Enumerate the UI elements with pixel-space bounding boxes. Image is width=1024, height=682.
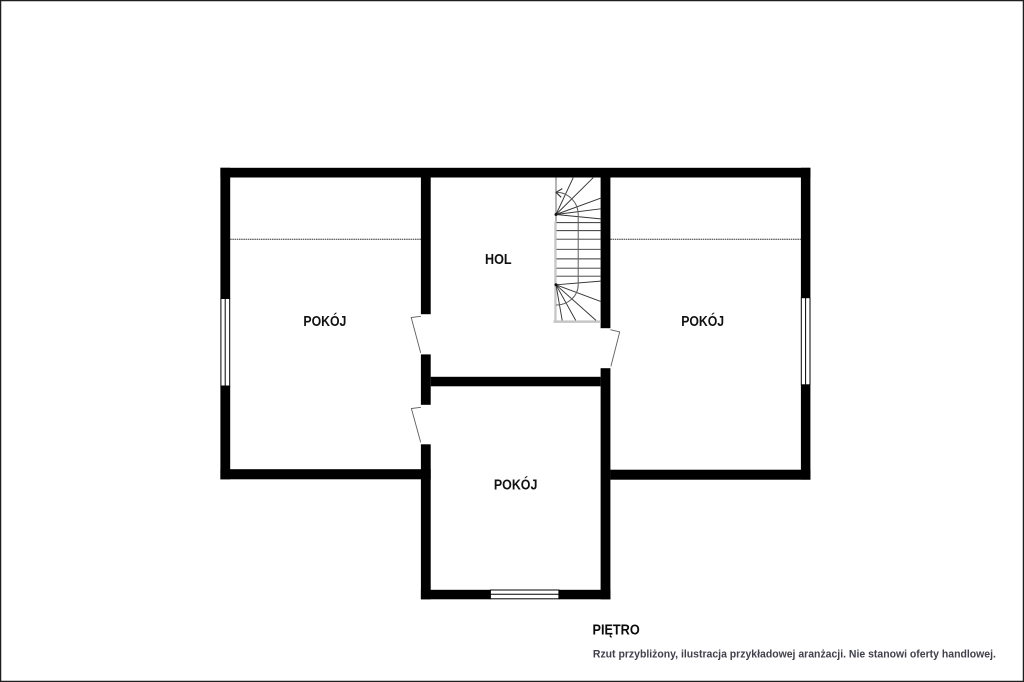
svg-text:Rzut przybliżony, ilustracja p: Rzut przybliżony, ilustracja przykładowe… — [593, 648, 996, 660]
svg-text:PIĘTRO: PIĘTRO — [593, 623, 640, 639]
svg-text:POKÓJ: POKÓJ — [681, 312, 724, 330]
svg-text:POKÓJ: POKÓJ — [494, 475, 538, 493]
svg-text:HOL: HOL — [485, 251, 512, 268]
svg-text:POKÓJ: POKÓJ — [303, 312, 346, 330]
